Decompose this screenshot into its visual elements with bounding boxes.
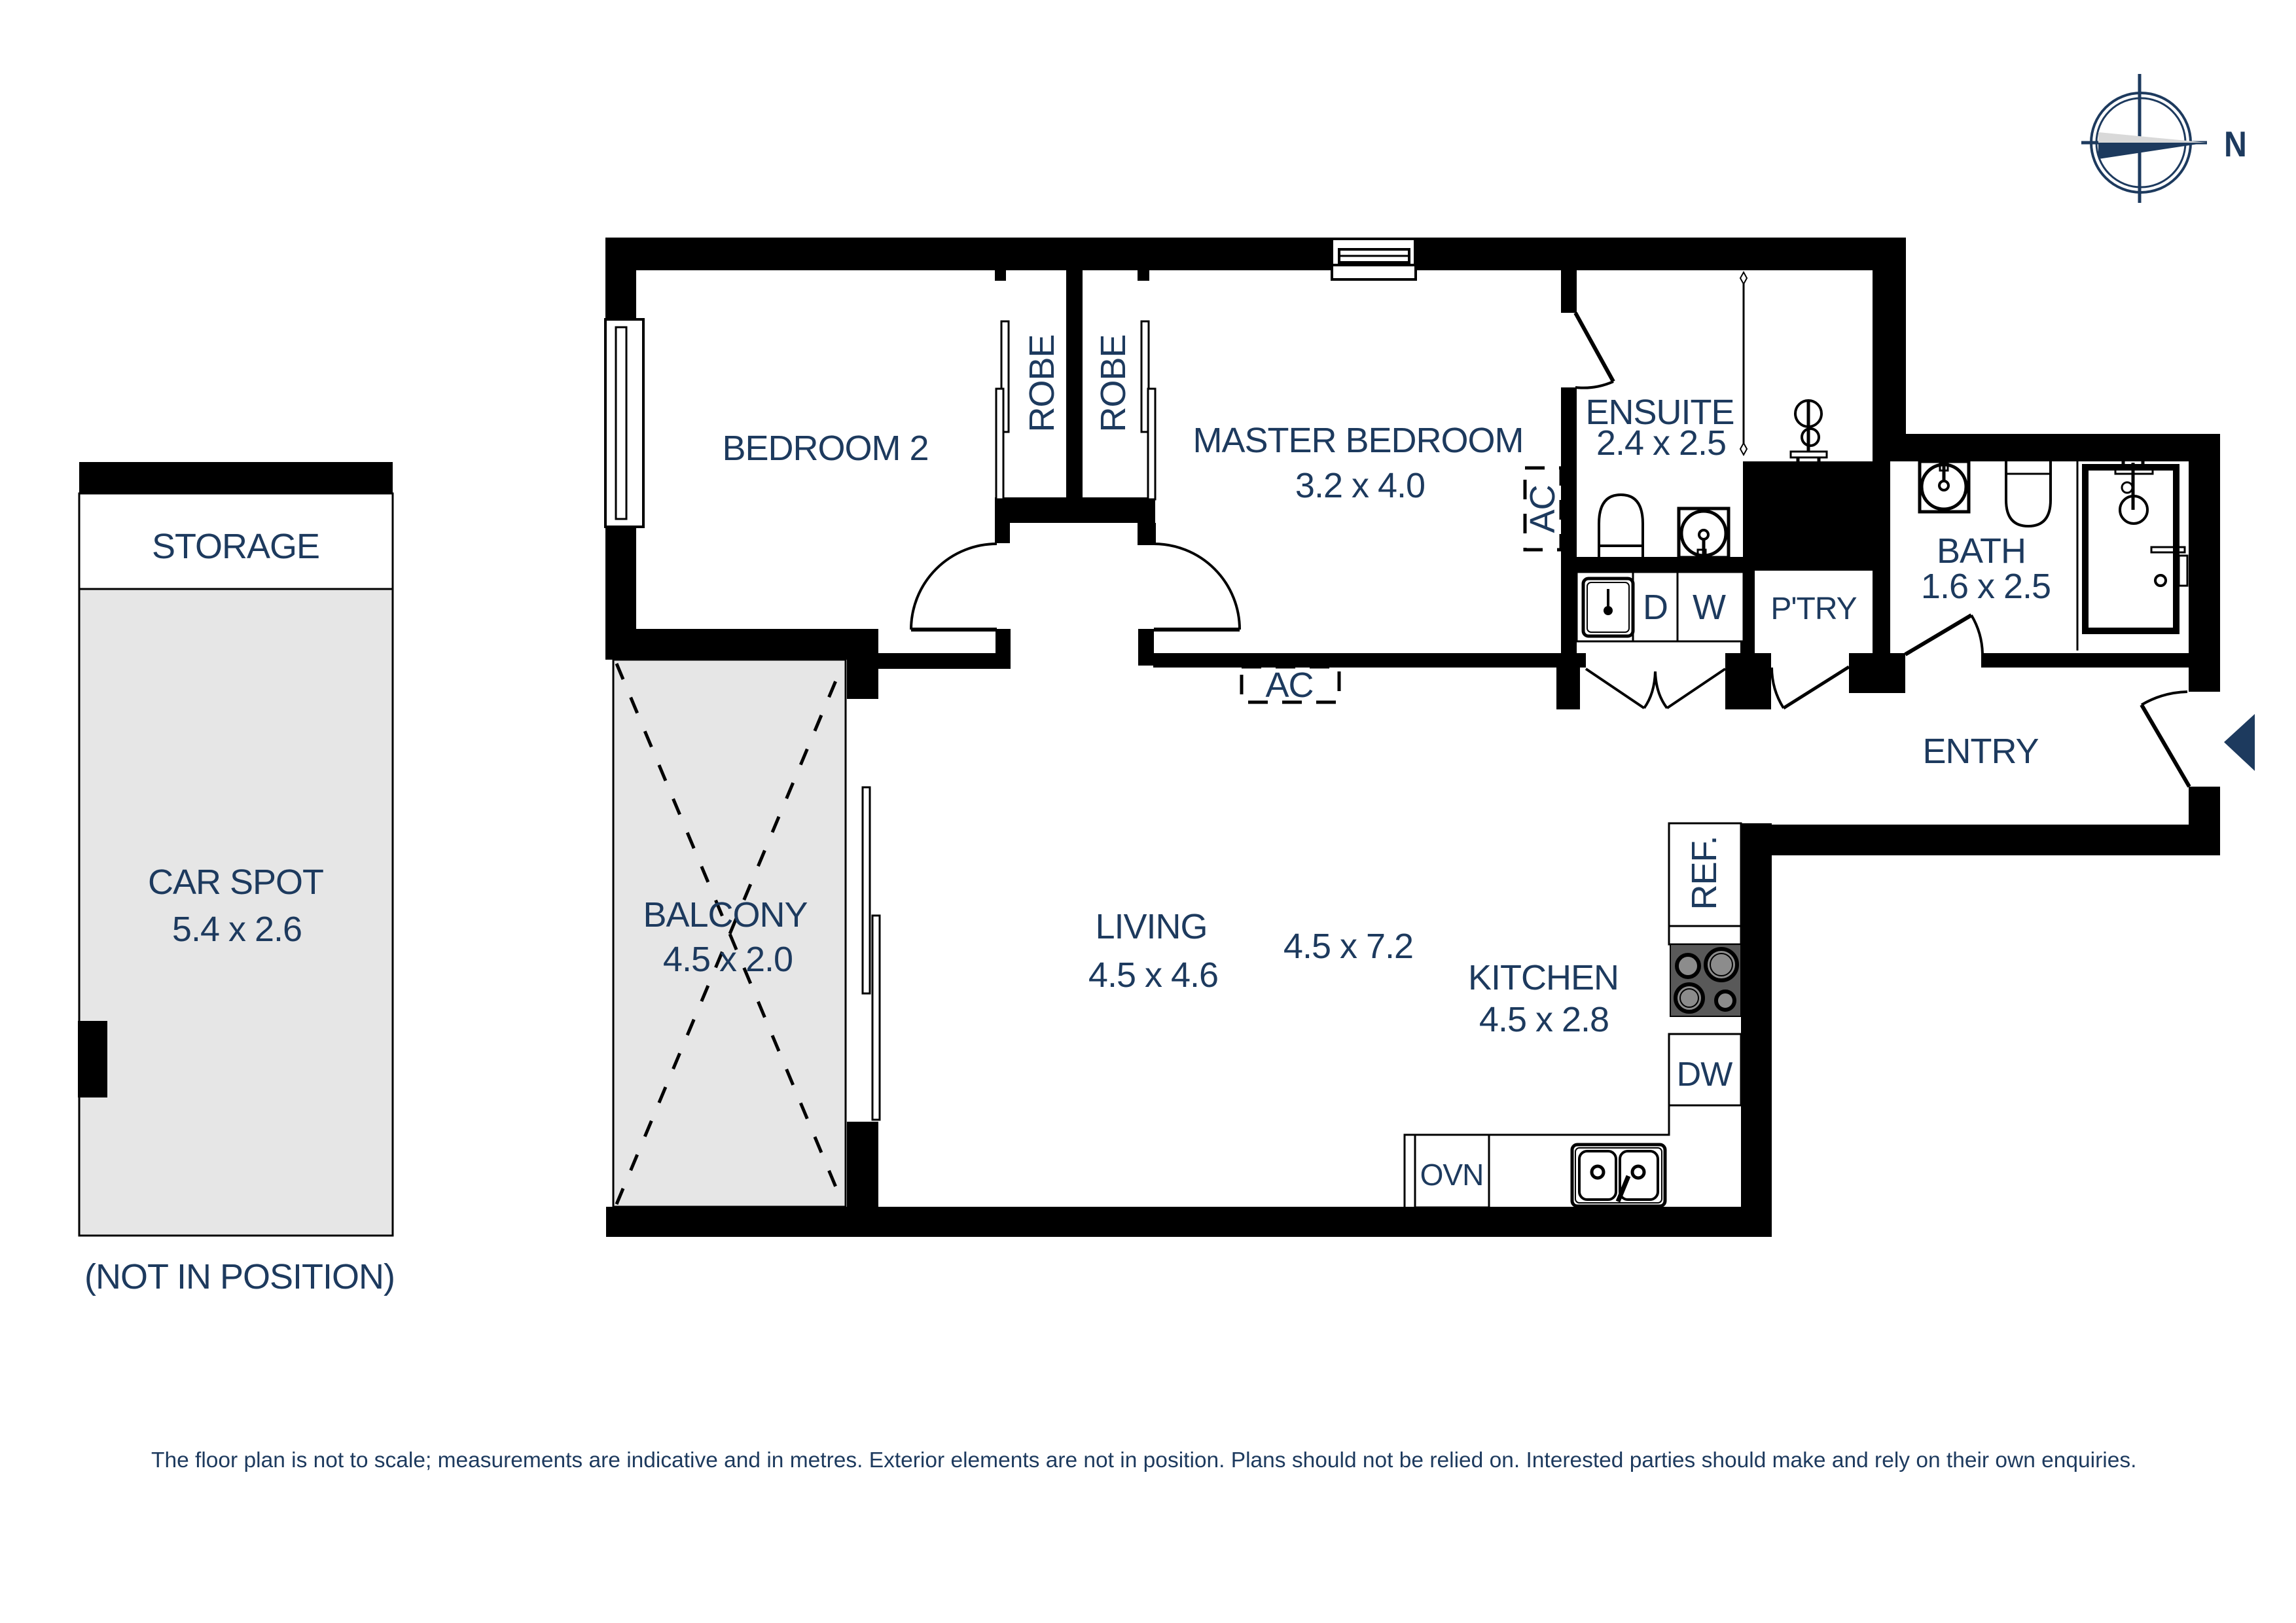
svg-text:AC: AC: [1523, 485, 1562, 533]
svg-text:BEDROOM 2: BEDROOM 2: [722, 429, 928, 468]
svg-text:2.4 x 2.5: 2.4 x 2.5: [1596, 423, 1726, 463]
svg-text:5.4 x 2.6: 5.4 x 2.6: [172, 910, 302, 949]
svg-text:KITCHEN: KITCHEN: [1468, 958, 1619, 997]
svg-text:LIVING: LIVING: [1095, 907, 1207, 946]
svg-text:N: N: [2224, 124, 2246, 164]
svg-text:4.5 x 7.2: 4.5 x 7.2: [1283, 927, 1413, 966]
svg-text:4.5 x 4.6: 4.5 x 4.6: [1088, 955, 1218, 995]
svg-text:ENTRY: ENTRY: [1922, 732, 2038, 771]
svg-text:BATH: BATH: [1937, 531, 2026, 571]
svg-text:MASTER BEDROOM: MASTER BEDROOM: [1193, 421, 1523, 460]
svg-text:REF.: REF.: [1685, 836, 1724, 910]
svg-text:CAR SPOT: CAR SPOT: [148, 863, 323, 902]
svg-text:BALCONY: BALCONY: [643, 895, 807, 935]
svg-text:4.5 x 2.8: 4.5 x 2.8: [1479, 1000, 1609, 1039]
svg-text:AC: AC: [1265, 666, 1313, 705]
svg-text:ROBE: ROBE: [1022, 334, 1062, 432]
svg-text:ROBE: ROBE: [1094, 334, 1133, 432]
svg-text:3.2 x 4.0: 3.2 x 4.0: [1295, 466, 1425, 505]
svg-text:OVN: OVN: [1420, 1158, 1484, 1192]
svg-text:STORAGE: STORAGE: [152, 527, 319, 566]
svg-text:(NOT IN POSITION): (NOT IN POSITION): [84, 1257, 395, 1296]
svg-text:W: W: [1693, 588, 1726, 627]
svg-text:D: D: [1643, 588, 1668, 627]
svg-text:P'TRY: P'TRY: [1770, 592, 1856, 626]
svg-text:1.6 x 2.5: 1.6 x 2.5: [1921, 567, 2051, 606]
svg-text:The floor plan is not to scale: The floor plan is not to scale; measurem…: [151, 1448, 2136, 1472]
svg-text:4.5 x 2.0: 4.5 x 2.0: [663, 940, 793, 979]
svg-text:DW: DW: [1677, 1056, 1733, 1094]
